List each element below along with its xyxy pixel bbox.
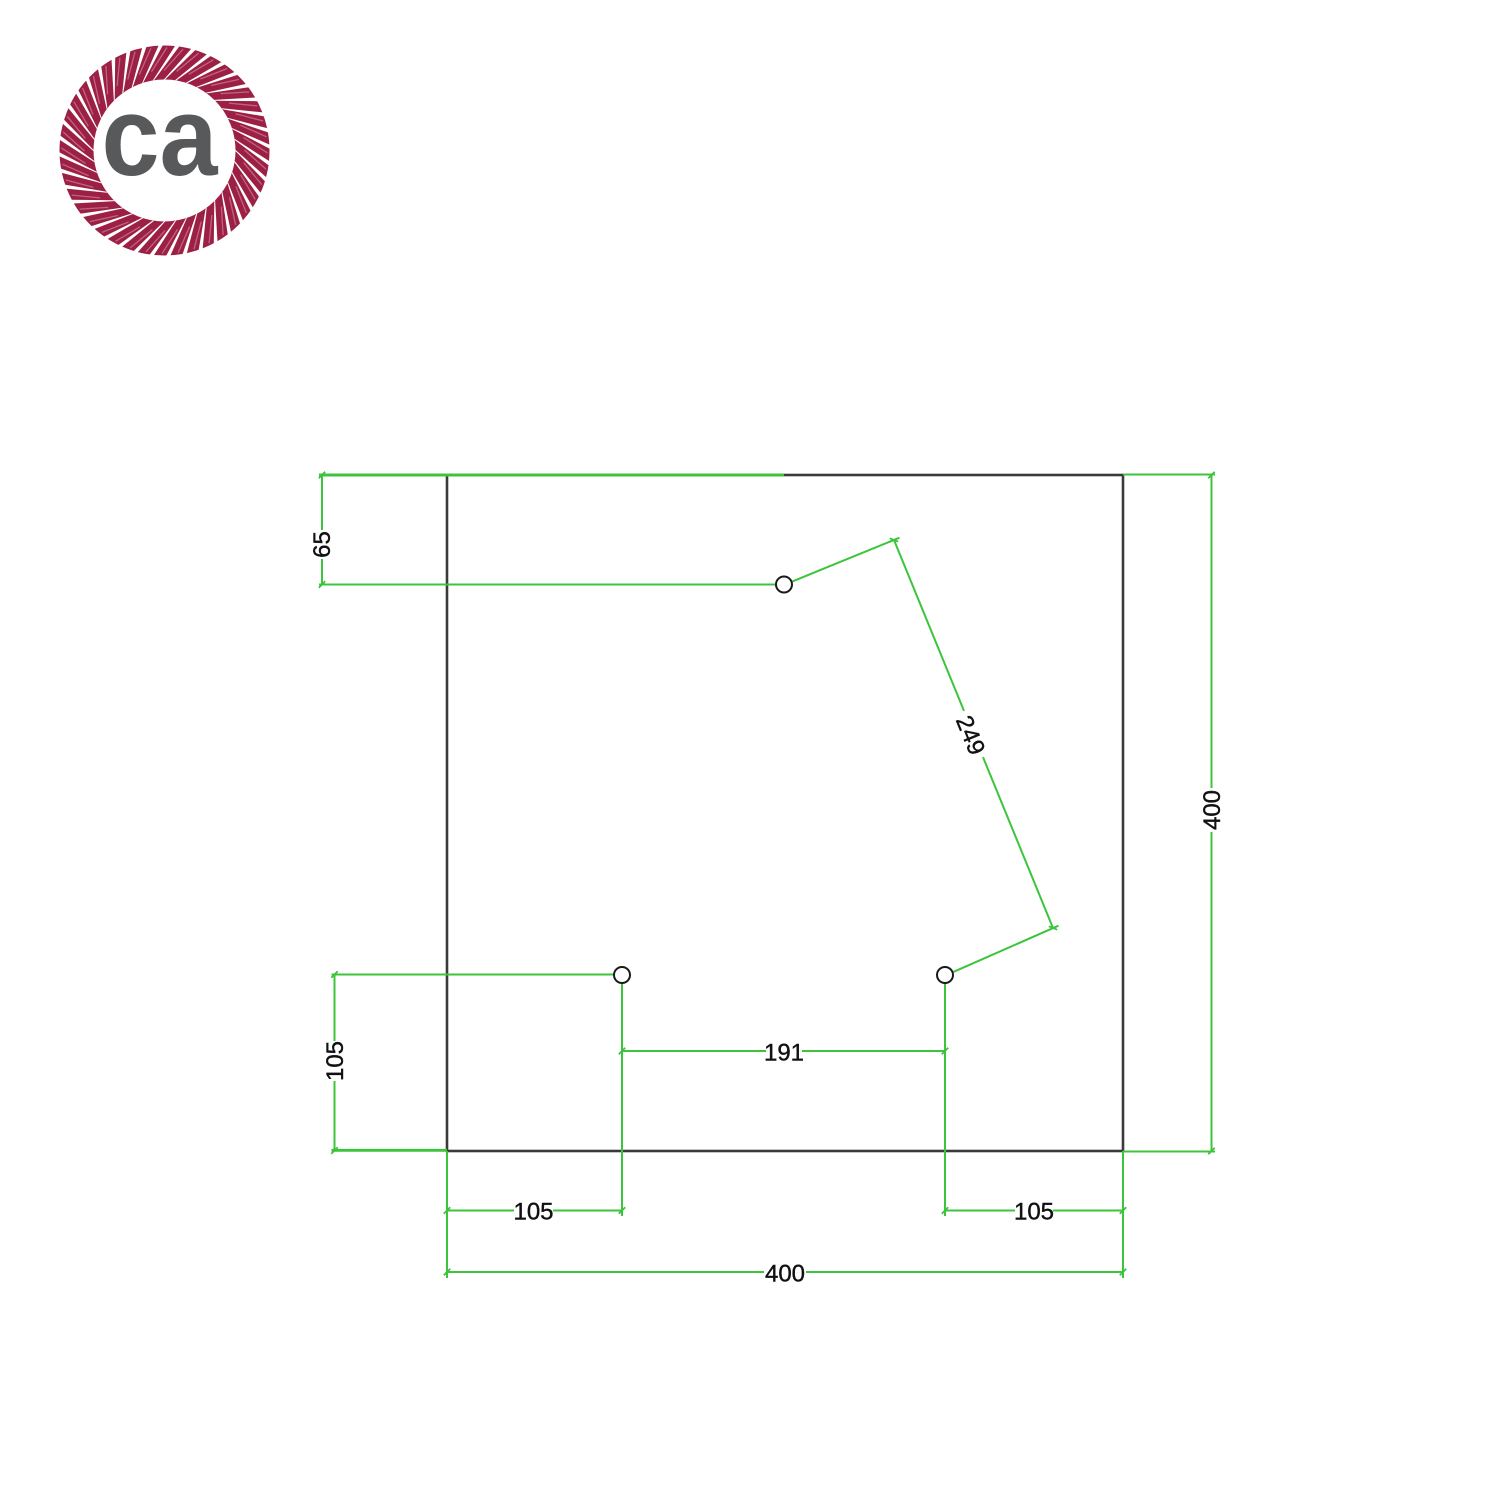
svg-text:400: 400 (1199, 790, 1226, 830)
svg-text:400: 400 (765, 1261, 805, 1288)
svg-text:ca: ca (102, 74, 219, 199)
svg-text:105: 105 (1014, 1199, 1054, 1226)
svg-text:65: 65 (309, 531, 336, 558)
svg-text:105: 105 (513, 1199, 553, 1226)
svg-text:191: 191 (764, 1040, 804, 1067)
svg-text:105: 105 (322, 1041, 349, 1081)
